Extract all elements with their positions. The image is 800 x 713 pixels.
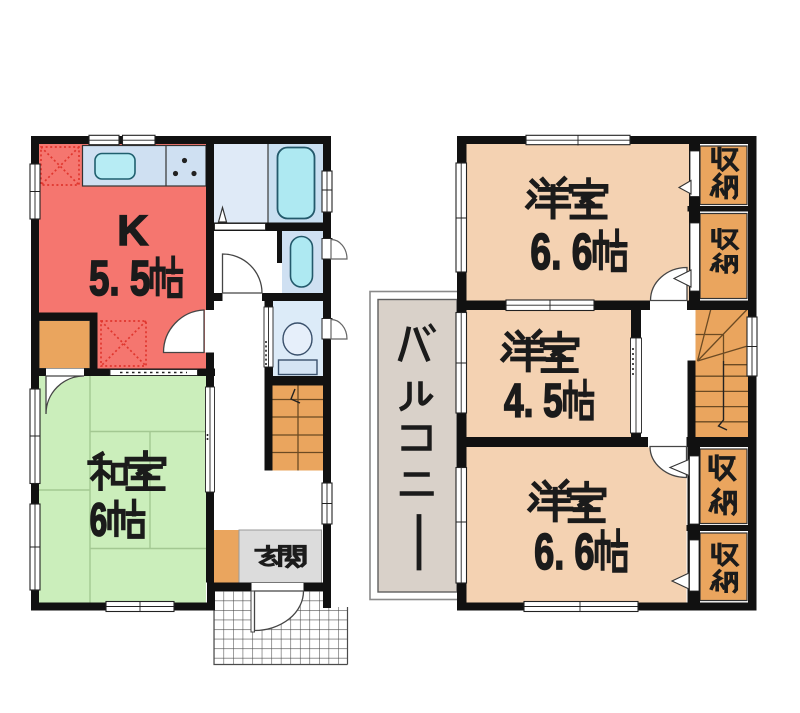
svg-text:K: K: [117, 207, 148, 255]
svg-text:6. 6: 6. 6: [534, 524, 594, 581]
svg-text:4. 5: 4. 5: [504, 374, 563, 427]
svg-text:5. 5: 5. 5: [89, 252, 150, 306]
svg-text:6: 6: [90, 495, 108, 546]
svg-text:6. 6: 6. 6: [530, 225, 592, 281]
